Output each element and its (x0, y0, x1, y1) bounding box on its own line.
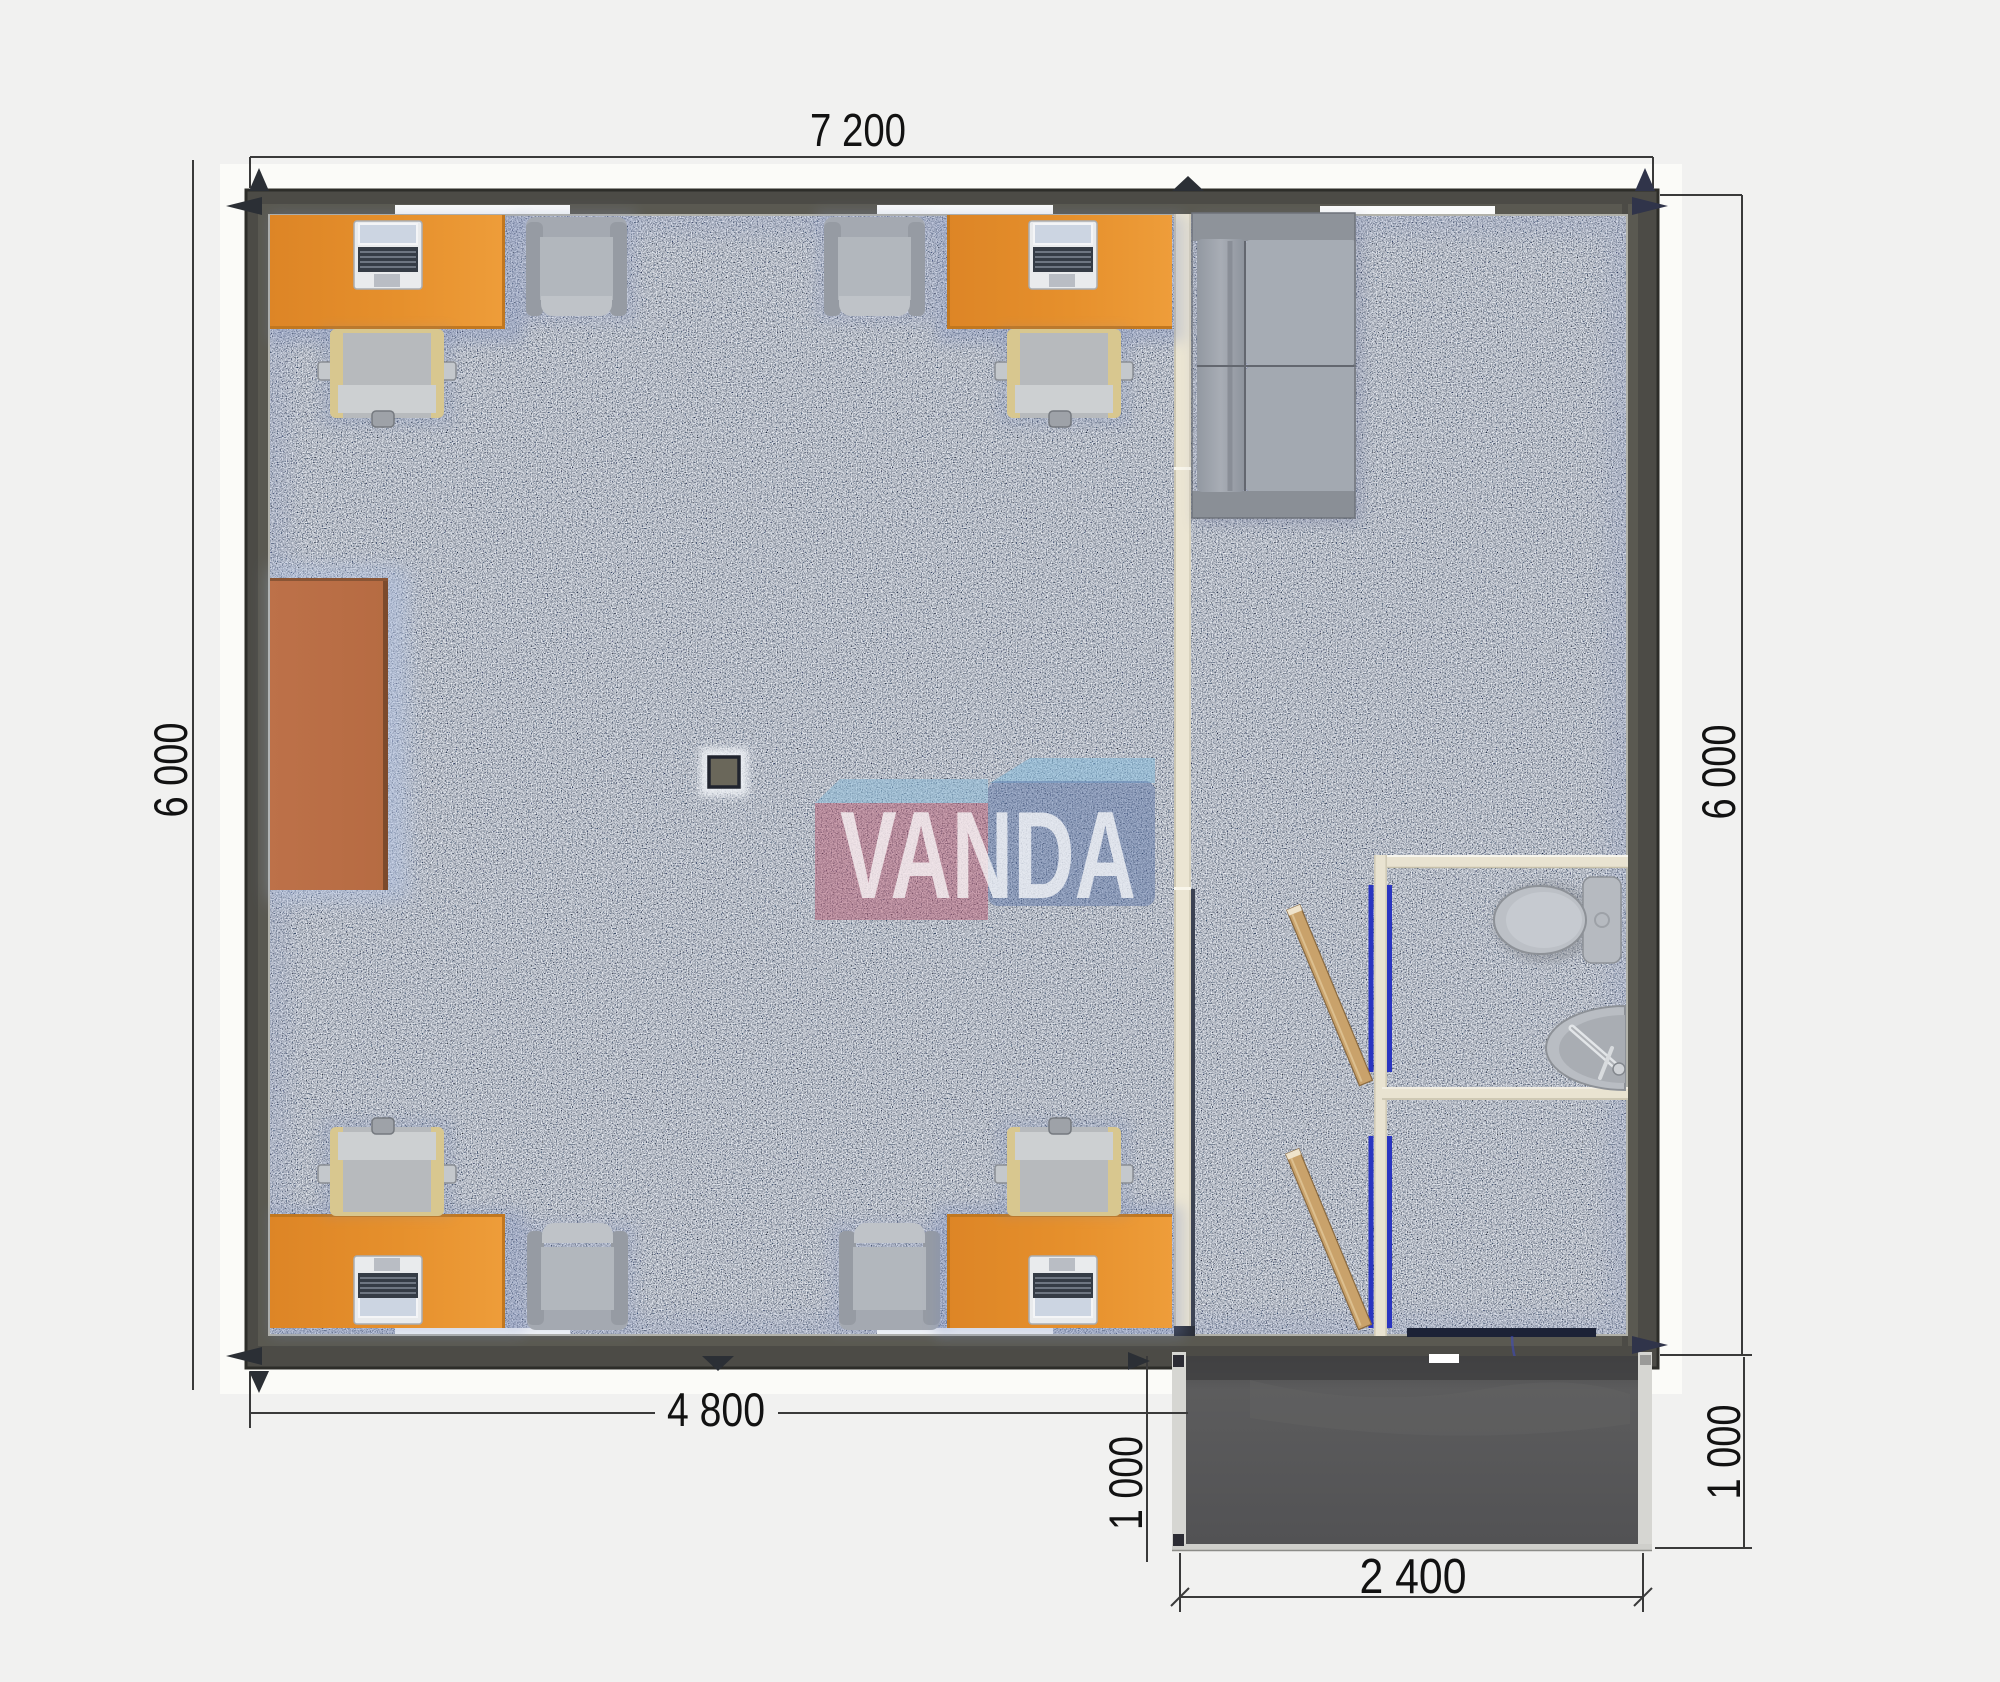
svg-text:2 400: 2 400 (1360, 1550, 1467, 1604)
svg-text:VANDA: VANDA (840, 787, 1136, 925)
svg-text:1 000: 1 000 (1697, 1405, 1750, 1500)
svg-text:6 000: 6 000 (1692, 725, 1745, 820)
svg-text:6 000: 6 000 (144, 723, 197, 818)
svg-text:4 800: 4 800 (667, 1383, 765, 1436)
svg-text:7 200: 7 200 (810, 104, 906, 156)
svg-text:1 000: 1 000 (1099, 1436, 1152, 1530)
